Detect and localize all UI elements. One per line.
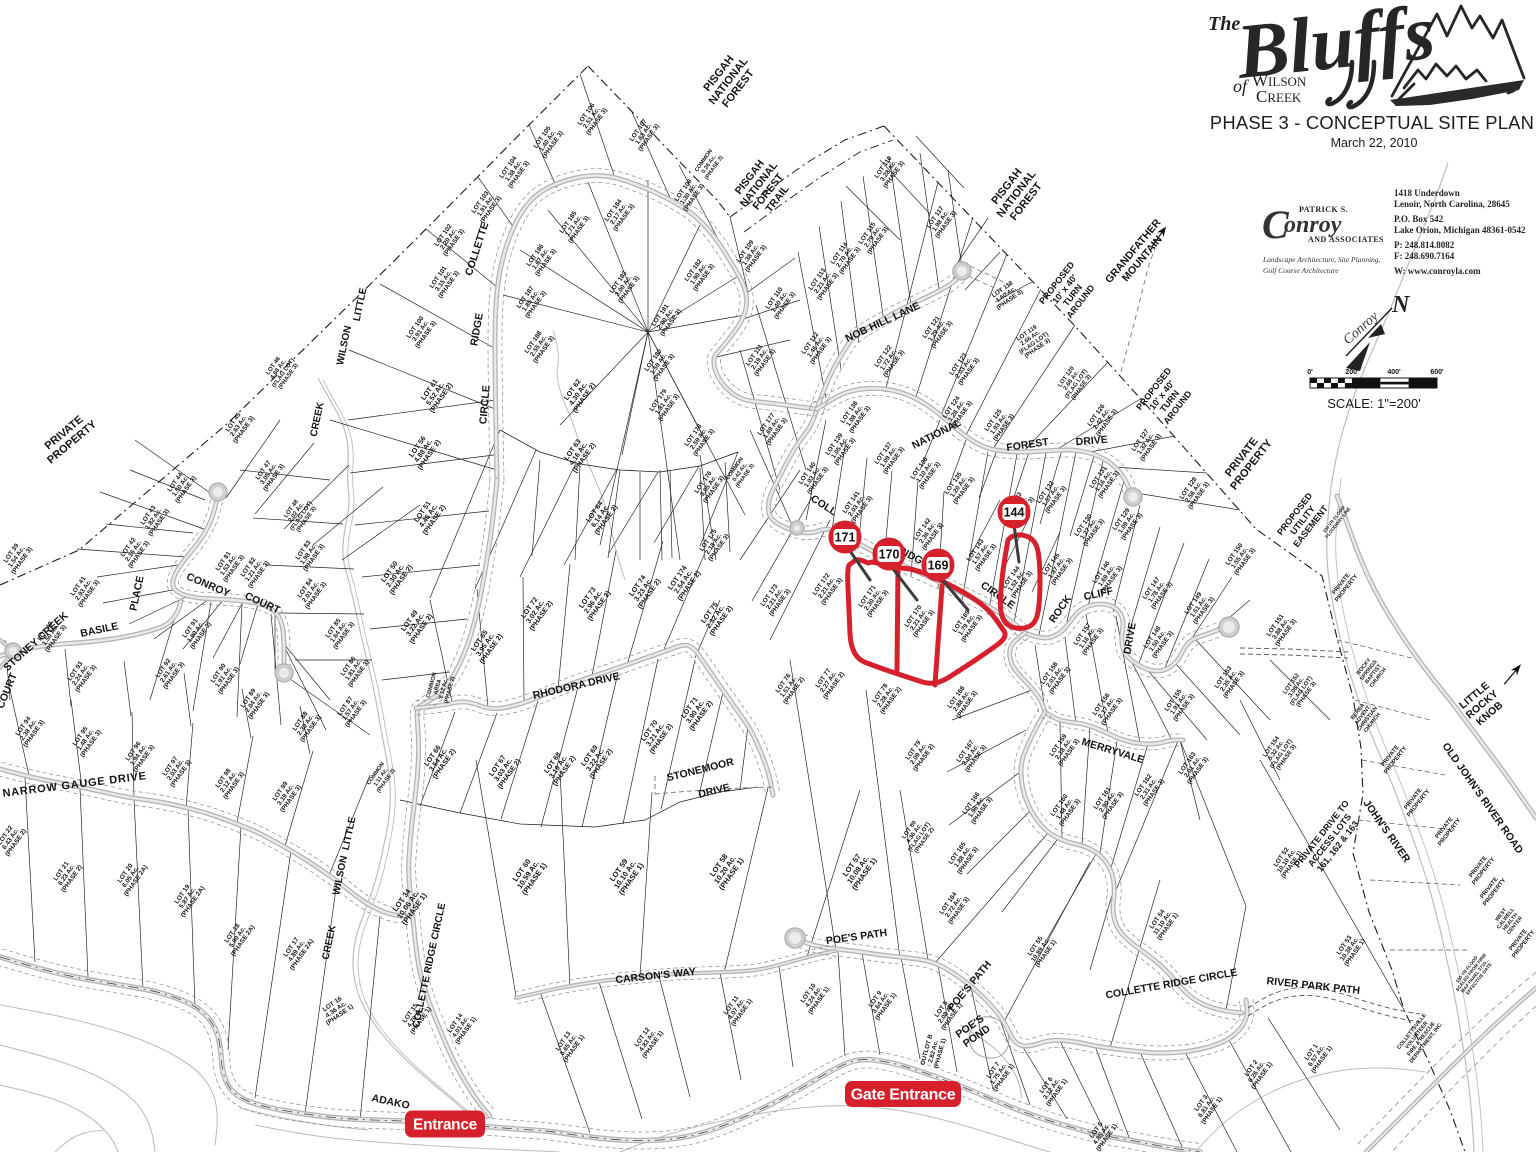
svg-text:0': 0'	[1307, 369, 1313, 376]
svg-text:SCALE: 1"=200': SCALE: 1"=200'	[1327, 396, 1420, 411]
svg-text:W: www.conroyla.com: W: www.conroyla.com	[1394, 266, 1481, 276]
svg-text:Lake Orion, Michigan 48361-054: Lake Orion, Michigan 48361-0542	[1394, 225, 1526, 235]
svg-text:Lenoir, North Carolina, 28645: Lenoir, North Carolina, 28645	[1394, 199, 1510, 209]
svg-text:Golf Course Architecture: Golf Course Architecture	[1263, 266, 1339, 275]
svg-text:CREEK: CREEK	[1256, 87, 1302, 106]
svg-text:144: 144	[1004, 506, 1025, 520]
svg-text:169: 169	[928, 559, 949, 573]
svg-text:N: N	[1391, 292, 1411, 318]
svg-text:PATRICK S.: PATRICK S.	[1299, 205, 1348, 214]
svg-text:1418 Underdown: 1418 Underdown	[1394, 188, 1460, 198]
svg-text:171: 171	[835, 531, 856, 545]
svg-text:Entrance: Entrance	[413, 1116, 478, 1133]
svg-text:Landscape Architecture, Site P: Landscape Architecture, Site Planning,	[1262, 255, 1381, 264]
svg-text:March 22, 2010: March 22, 2010	[1331, 136, 1418, 150]
svg-text:600': 600'	[1430, 369, 1444, 376]
svg-text:P: 248.814.8082: P: 248.814.8082	[1394, 240, 1455, 250]
svg-text:P.O. Box 542: P.O. Box 542	[1394, 214, 1444, 224]
svg-text:170: 170	[879, 548, 900, 562]
svg-text:200': 200'	[1345, 369, 1359, 376]
svg-text:PHASE 3 - CONCEPTUAL SITE PLAN: PHASE 3 - CONCEPTUAL SITE PLAN	[1210, 112, 1534, 133]
svg-text:Gate Entrance: Gate Entrance	[851, 1087, 956, 1104]
svg-text:F: 248.690.7164: F: 248.690.7164	[1394, 251, 1455, 261]
svg-text:400': 400'	[1387, 369, 1401, 376]
svg-text:AND ASSOCIATES: AND ASSOCIATES	[1308, 235, 1384, 244]
